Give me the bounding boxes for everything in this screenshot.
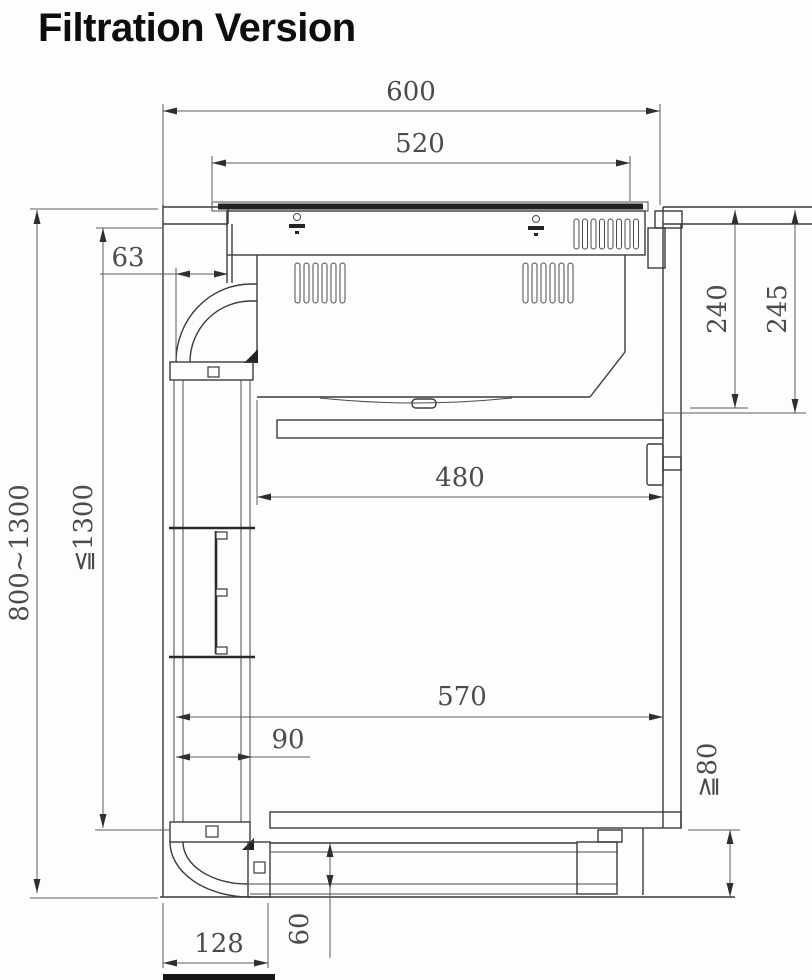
dim-90-label: 90 <box>271 725 304 755</box>
dim-480-label: 480 <box>435 463 485 493</box>
technical-drawing: 600 520 63 <box>0 0 812 980</box>
chassis-vent-slots <box>574 219 639 249</box>
dim-63: 63 <box>100 243 228 360</box>
dim-520-label: 520 <box>395 129 445 159</box>
dim-128-label: 128 <box>194 929 244 959</box>
dim-max-1300-label: ≦1300 <box>69 484 99 572</box>
dim-800-1300-label: 800~1300 <box>5 484 35 622</box>
dim-63-label: 63 <box>111 243 144 273</box>
dim-480: 480 <box>257 400 663 505</box>
dim-min-80-label: ≧80 <box>693 743 723 798</box>
duct-assembly <box>169 284 617 897</box>
dim-90: 90 <box>176 725 310 761</box>
dim-520: 520 <box>212 129 630 201</box>
screw-marks <box>289 214 544 237</box>
wall-and-floor <box>160 205 735 897</box>
cabinet-carcase <box>270 211 682 895</box>
hob-unit <box>212 202 648 408</box>
dim-128: 128 <box>163 903 268 968</box>
dim-570: 570 <box>176 682 663 721</box>
dim-max-1300: ≦1300 <box>69 228 170 830</box>
filter-section <box>169 528 255 657</box>
worktop <box>163 207 812 224</box>
dim-240: 240 <box>690 210 748 408</box>
dim-60-label: 60 <box>285 912 315 945</box>
page: Filtration Version <box>0 0 812 980</box>
dim-570-label: 570 <box>437 682 487 712</box>
dim-240-label: 240 <box>703 284 733 334</box>
dim-min-80: ≧80 <box>688 743 740 897</box>
dim-60: 60 <box>285 843 334 958</box>
dim-245-label: 245 <box>763 284 793 334</box>
plenum-vent-slots <box>295 263 573 303</box>
scan-artifact <box>163 974 275 980</box>
dim-600-label: 600 <box>386 77 436 107</box>
